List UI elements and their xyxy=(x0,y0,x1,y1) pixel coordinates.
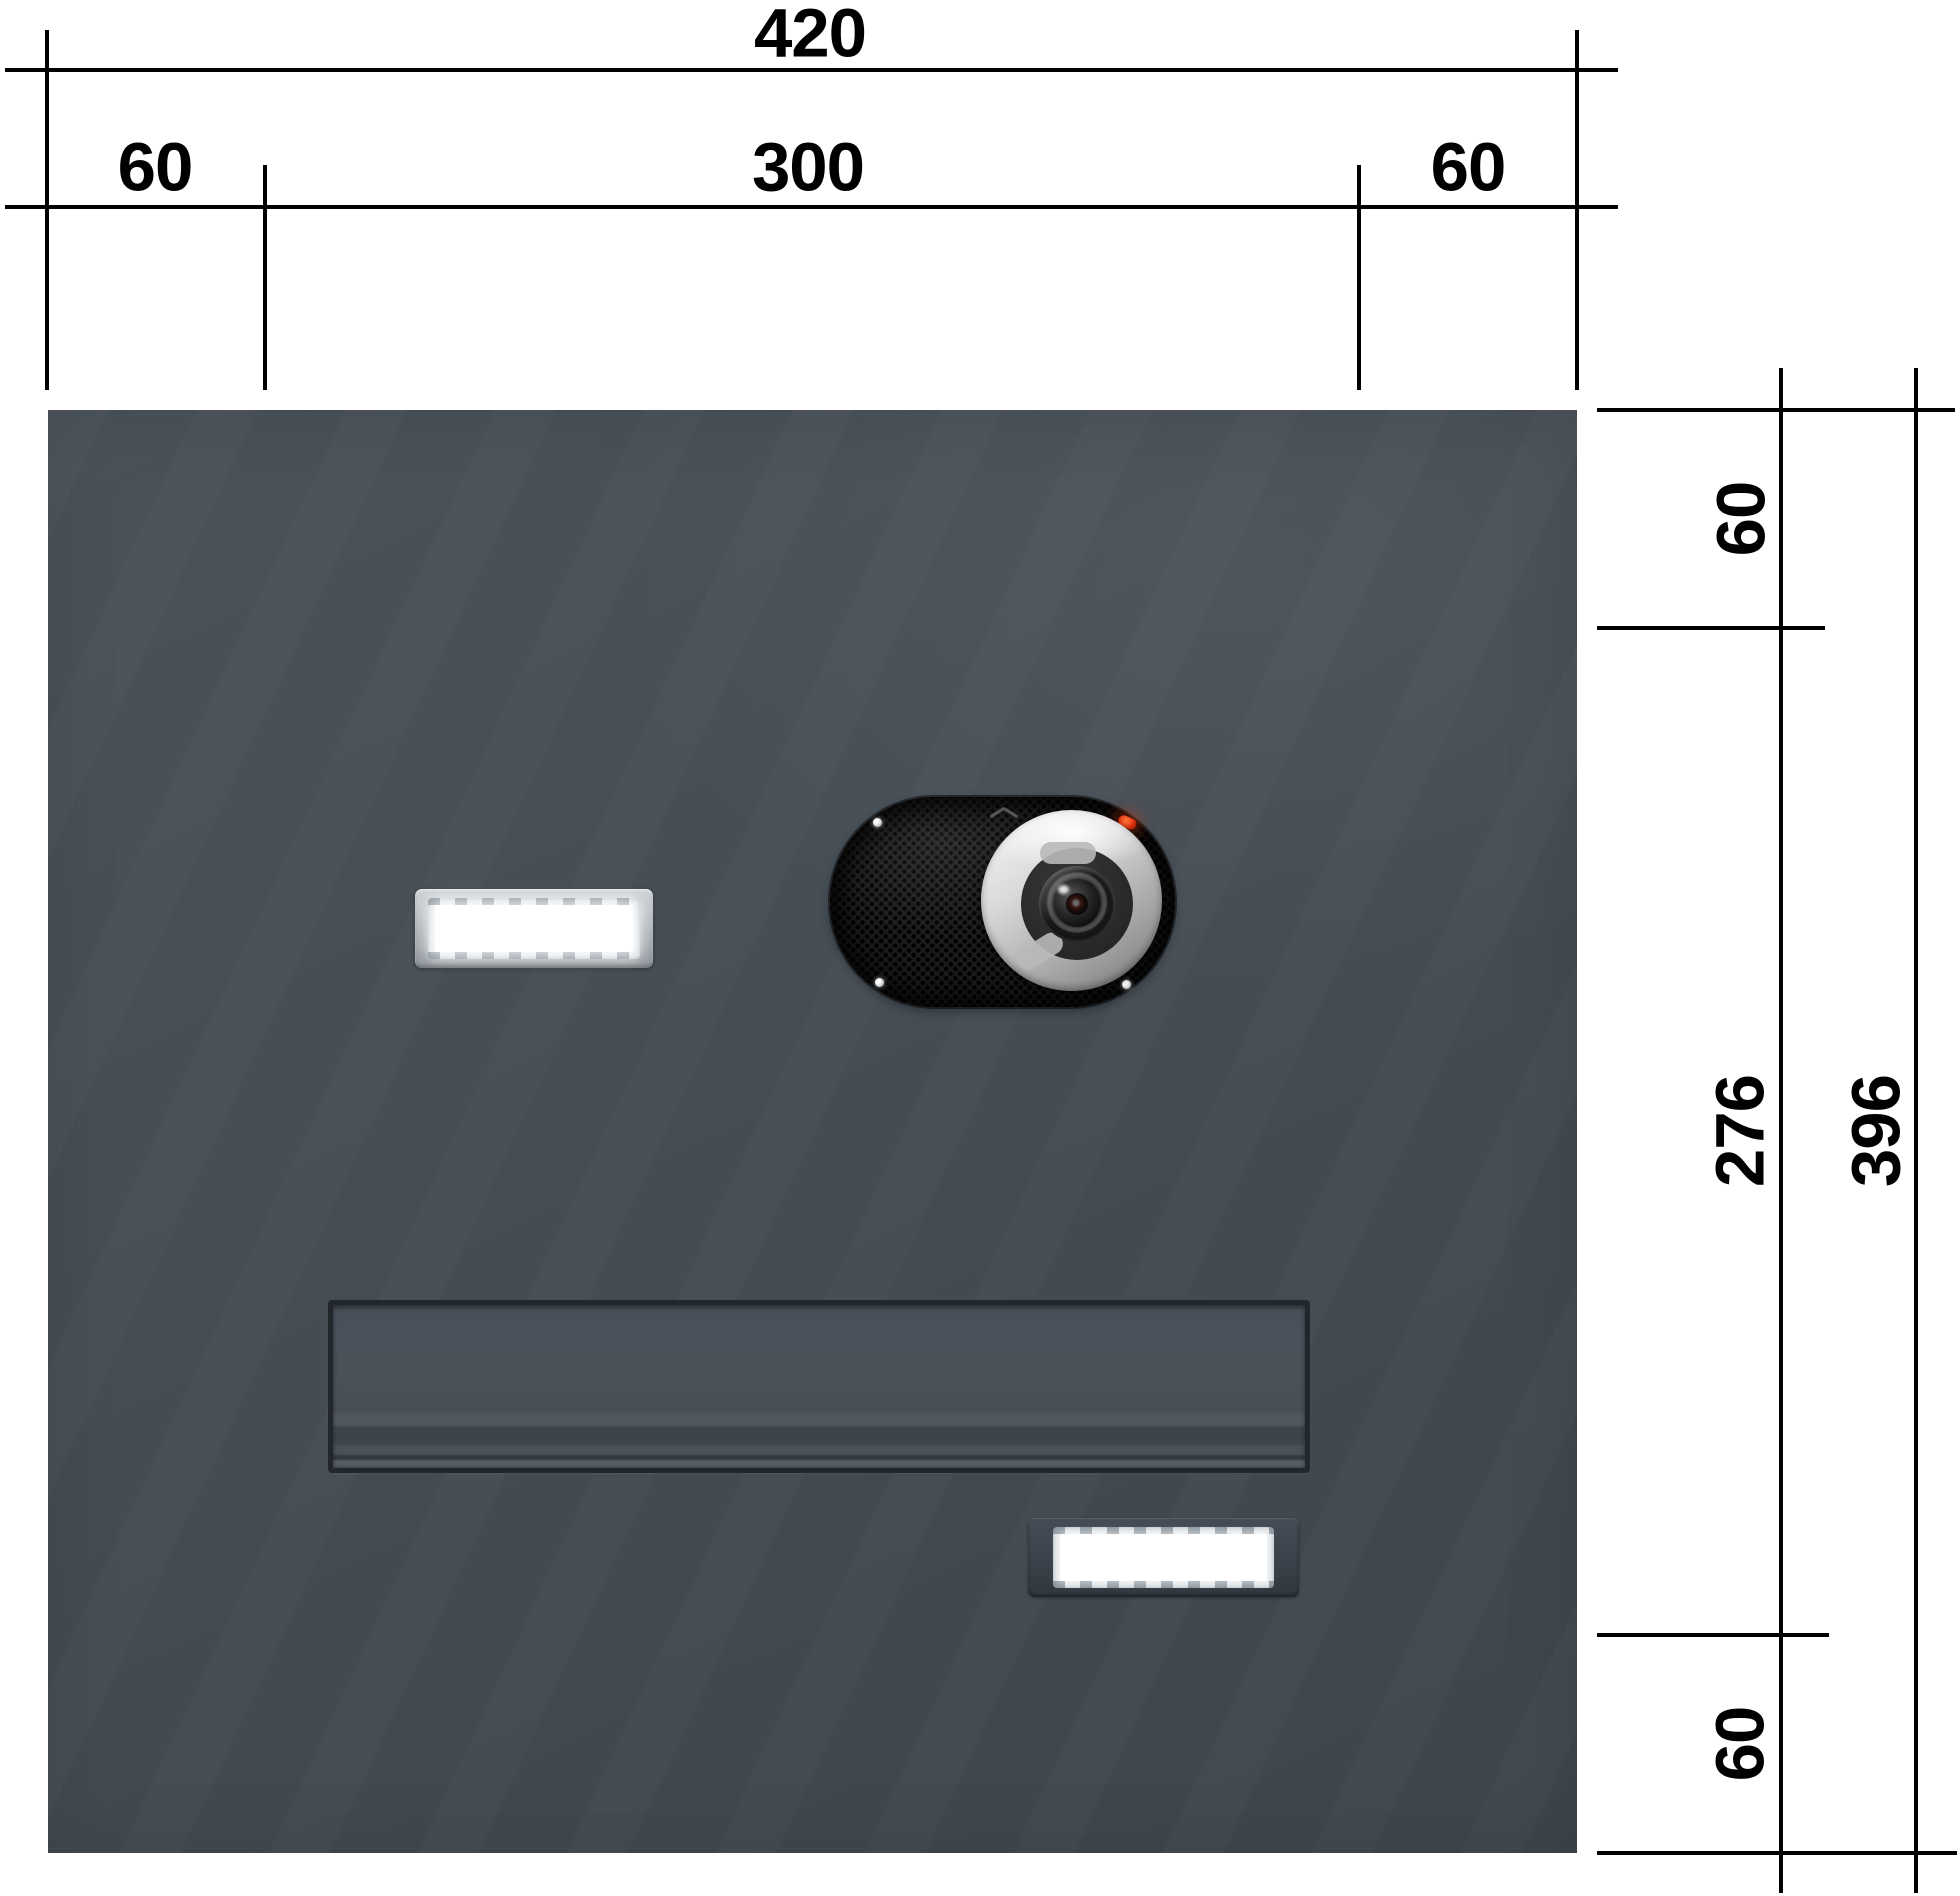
dim-label-left-margin: 60 xyxy=(118,133,193,202)
extension-line-60-top xyxy=(1597,626,1825,630)
dim-label-right-margin: 60 xyxy=(1431,133,1506,202)
nameplate-name-window xyxy=(1060,1534,1267,1581)
bell-button-crystal-frame xyxy=(428,898,640,959)
bell-button xyxy=(415,889,653,968)
letter-slot-flap xyxy=(328,1300,1310,1473)
camera-lens xyxy=(981,810,1162,991)
dim-label-top-margin: 60 xyxy=(1707,482,1776,557)
extension-line-panel-bottom xyxy=(1597,1851,1957,1855)
intercom-panel xyxy=(48,410,1577,1853)
dim-label-center-width: 300 xyxy=(752,133,864,202)
screw-icon xyxy=(875,978,884,987)
nameplate-crystal-frame xyxy=(1053,1527,1274,1588)
dim-label-total-width: 420 xyxy=(754,0,866,68)
extension-line-60-bottom xyxy=(1597,1633,1829,1637)
lens-highlight xyxy=(1058,885,1069,894)
dim-line-height-segments xyxy=(1779,368,1783,1893)
camera-speaker-module xyxy=(830,797,1175,1007)
dim-label-center-height: 276 xyxy=(1706,1075,1775,1187)
nameplate xyxy=(1028,1518,1299,1597)
dim-label-total-height: 396 xyxy=(1842,1075,1911,1187)
dim-line-total-height xyxy=(1914,368,1918,1893)
extension-line-panel-left xyxy=(45,30,49,390)
bell-button-name-window xyxy=(435,905,633,952)
screw-icon xyxy=(873,818,882,827)
lens-mount-notch xyxy=(1040,842,1096,864)
drawing-canvas: 420 60 300 60 60 276 396 60 xyxy=(0,0,1960,1896)
lens-aperture xyxy=(1066,893,1088,915)
dim-line-width-segments xyxy=(5,205,1618,209)
extension-line-panel-top xyxy=(1597,408,1955,412)
extension-line-60-left xyxy=(263,165,267,390)
extension-line-60-right xyxy=(1357,165,1361,390)
extension-line-panel-right xyxy=(1575,30,1579,390)
dim-label-bottom-margin: 60 xyxy=(1706,1707,1775,1782)
